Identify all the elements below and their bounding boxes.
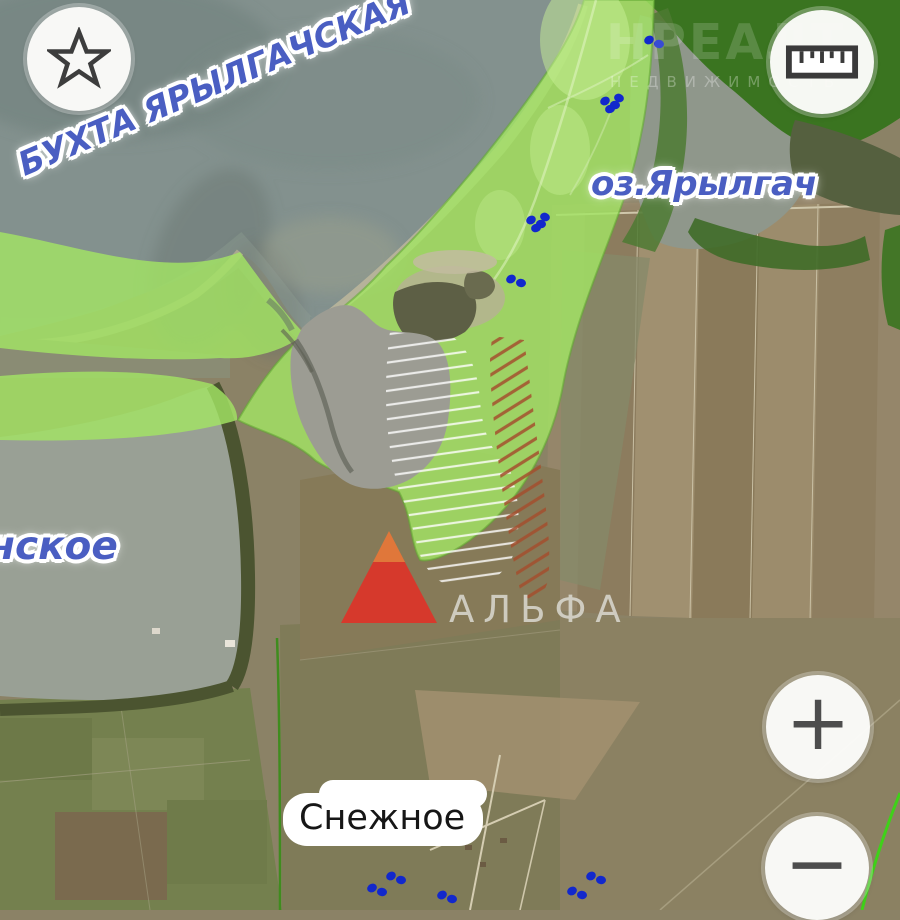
map-canvas[interactable] <box>0 0 900 910</box>
ruler-icon <box>785 40 859 84</box>
favorites-button[interactable] <box>27 7 131 111</box>
zoom-in-button[interactable]: + <box>766 675 870 779</box>
plus-icon: + <box>785 684 850 762</box>
measure-button[interactable] <box>770 10 874 114</box>
star-icon <box>47 27 111 91</box>
village-label: Снежное <box>283 793 483 846</box>
zoom-out-button[interactable]: − <box>765 816 869 920</box>
minus-icon: − <box>784 825 849 903</box>
